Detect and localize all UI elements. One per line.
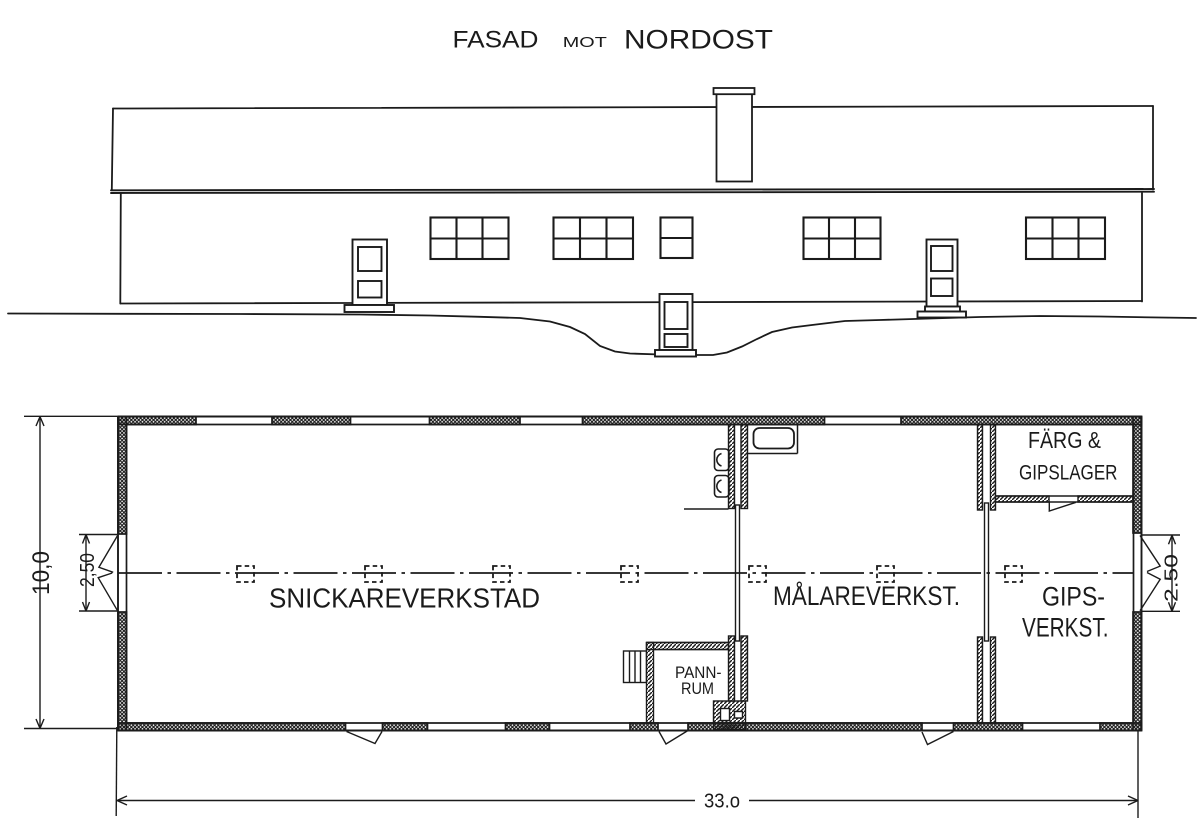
svg-text:RUM: RUM <box>681 679 714 698</box>
svg-text:SNICKAREVERKSTAD: SNICKAREVERKSTAD <box>269 583 540 614</box>
svg-text:2.50: 2.50 <box>1162 554 1182 602</box>
svg-text:GIPS-: GIPS- <box>1042 582 1105 612</box>
svg-text:33.o: 33.o <box>704 791 740 813</box>
svg-text:VERKST.: VERKST. <box>1022 613 1109 643</box>
svg-text:2,50: 2,50 <box>77 553 99 587</box>
svg-text:NORDOST: NORDOST <box>624 25 773 55</box>
svg-text:MOT: MOT <box>563 34 607 51</box>
svg-text:GIPSLAGER: GIPSLAGER <box>1019 462 1118 485</box>
svg-text:10,0: 10,0 <box>28 551 55 595</box>
svg-text:FÄRG &: FÄRG & <box>1028 427 1101 453</box>
svg-text:MÅLAREVERKST.: MÅLAREVERKST. <box>773 581 960 611</box>
svg-text:FASAD: FASAD <box>453 27 539 54</box>
